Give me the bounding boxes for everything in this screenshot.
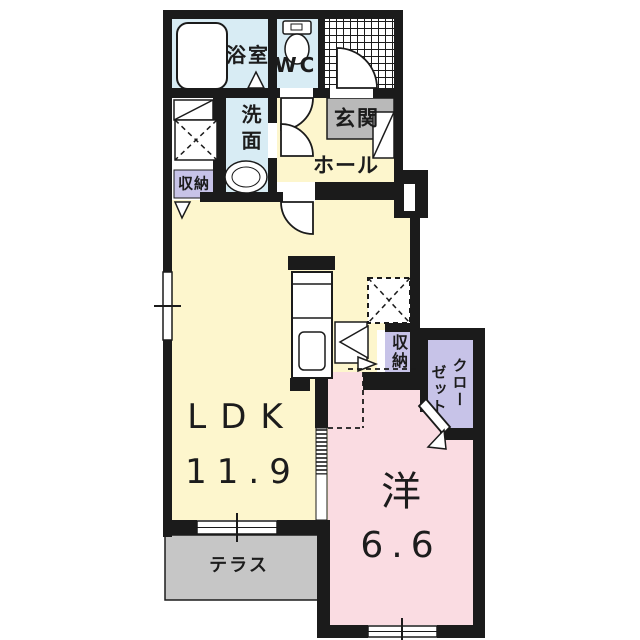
- toilet-lid-button: [291, 24, 302, 30]
- bathtub: [177, 23, 227, 89]
- storage-left-label: 収納: [178, 177, 210, 192]
- entrance-label: 玄関: [334, 109, 380, 130]
- terrace-label: テラス: [209, 557, 269, 575]
- storage-right-label: 収納: [390, 334, 406, 370]
- wall-segment: [315, 378, 328, 428]
- wall-segment: [318, 19, 325, 88]
- floor-plan: 浴室 WC 玄関 ホール 洗面 収納 収納 クロー ゼット LDK 11.9 洋…: [0, 0, 640, 640]
- ldk-size-label: 11.9: [185, 455, 301, 489]
- floor-plan-drawing: [0, 0, 640, 640]
- wall-segment: [315, 182, 403, 200]
- doorway-front: [330, 88, 373, 98]
- wall-segment: [394, 10, 403, 182]
- doorway-ldk: [283, 182, 315, 202]
- washbasin-inner: [232, 167, 260, 187]
- closet-label-col-right: クロー: [452, 358, 467, 409]
- closet-label-col-left: ゼット: [431, 365, 446, 416]
- wall-segment: [268, 98, 277, 123]
- doorway-washroom: [268, 123, 277, 158]
- toilet-label: WC: [275, 55, 318, 75]
- wall-segment: [163, 10, 172, 272]
- western-room-label: 洋: [381, 472, 421, 512]
- wall-segment: [163, 340, 172, 537]
- wall-segment: [410, 218, 420, 390]
- wall-segment: [163, 10, 403, 19]
- wall-notch: [404, 184, 415, 211]
- bathroom-label: 浴室: [226, 45, 270, 65]
- wall-segment: [385, 323, 413, 332]
- wall-segment: [268, 158, 277, 202]
- sliding-door-panel-plain: [316, 474, 327, 520]
- western-room-size-label: 6.6: [360, 528, 441, 564]
- wall-segment: [317, 520, 330, 638]
- wall-segment: [373, 88, 394, 98]
- ldk-label: LDK: [187, 400, 296, 434]
- wall-segment: [313, 88, 330, 98]
- wall-segment: [288, 256, 335, 270]
- kitchen-sink: [299, 332, 325, 370]
- washroom-label: 洗面: [240, 104, 260, 156]
- wall-segment: [473, 328, 485, 638]
- hall-label: ホール: [313, 156, 379, 177]
- doorway-wc: [280, 88, 313, 98]
- wall-segment: [290, 378, 310, 391]
- sliding-door-panel-hatched: [316, 428, 327, 474]
